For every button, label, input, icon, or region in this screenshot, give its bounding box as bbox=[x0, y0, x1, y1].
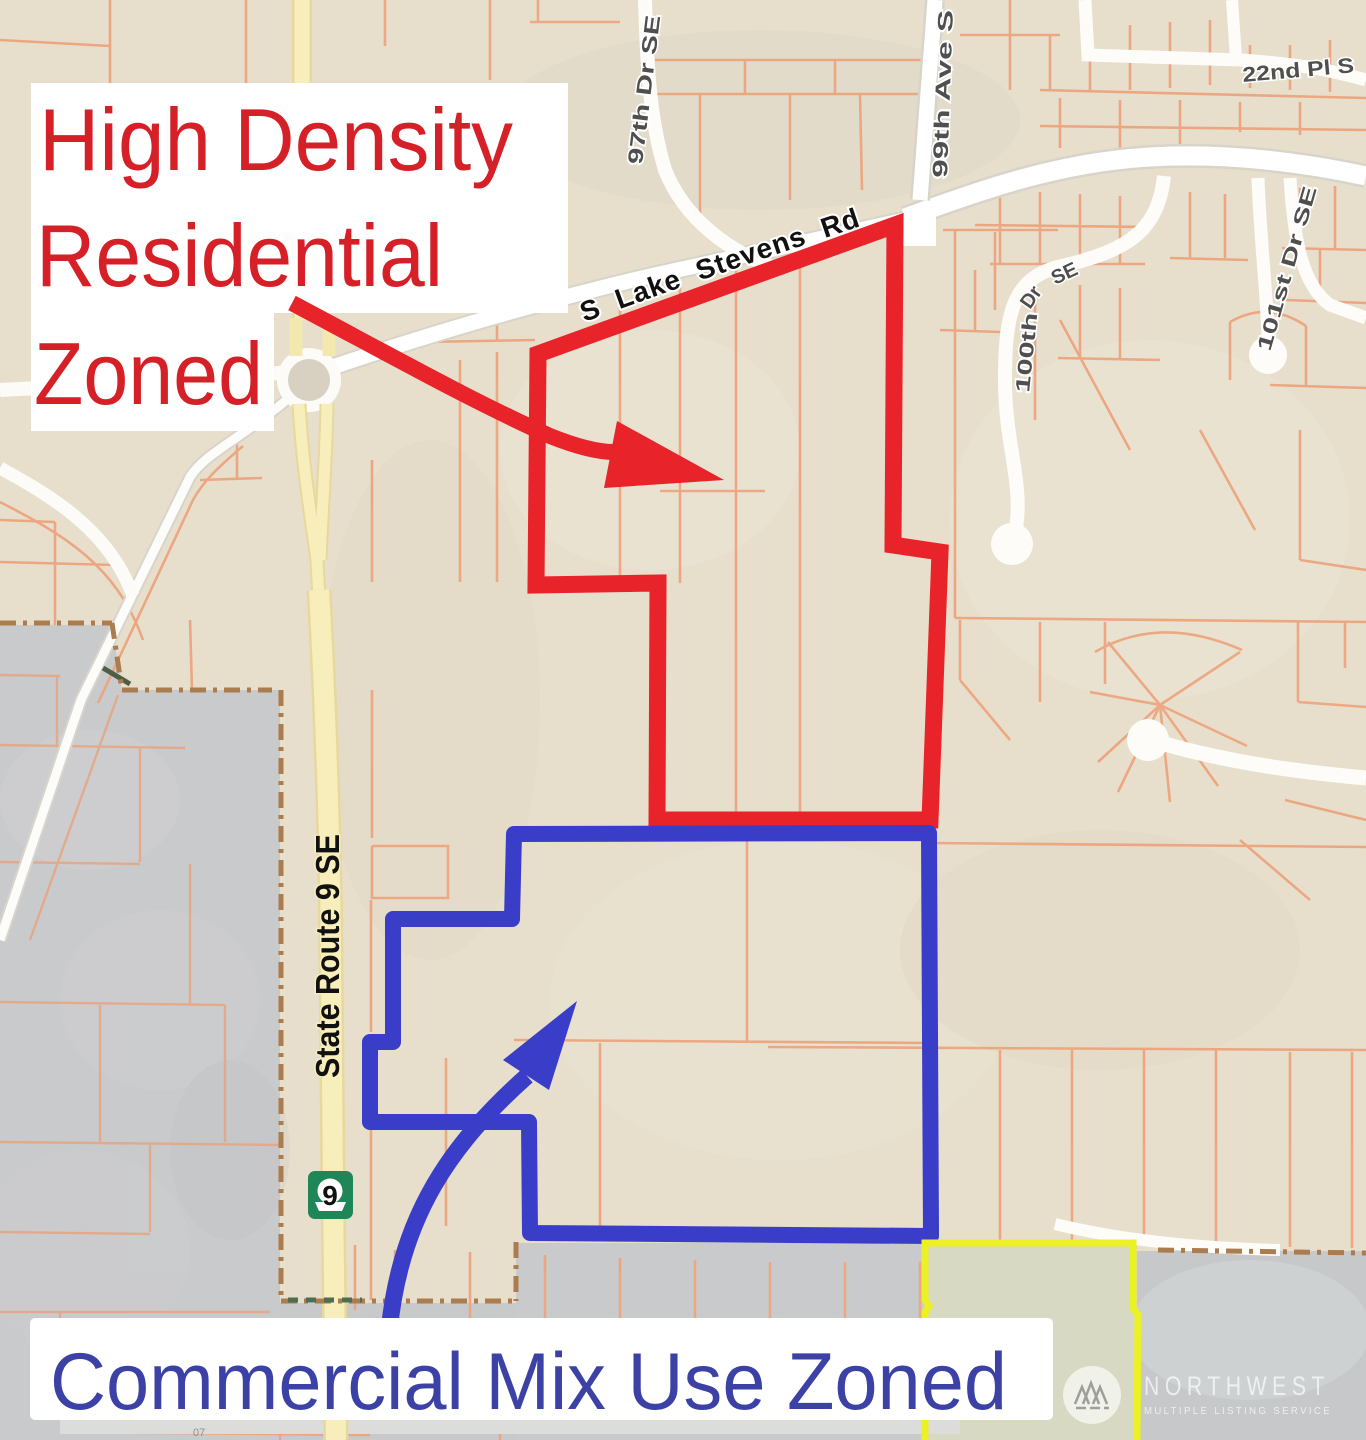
svg-text:Zoned: Zoned bbox=[34, 324, 263, 423]
svg-text:High Density: High Density bbox=[39, 90, 513, 189]
svg-text:9: 9 bbox=[322, 1180, 338, 1211]
svg-text:State Route 9 SE: State Route 9 SE bbox=[309, 834, 346, 1078]
svg-text:NORTHWEST: NORTHWEST bbox=[1144, 1371, 1330, 1401]
svg-text:MULTIPLE LISTING SERVICE: MULTIPLE LISTING SERVICE bbox=[1144, 1406, 1332, 1417]
svg-text:07: 07 bbox=[193, 1427, 205, 1439]
svg-text:Residential: Residential bbox=[36, 206, 443, 305]
svg-text:Commercial Mix Use Zoned: Commercial Mix Use Zoned bbox=[50, 1337, 1007, 1427]
